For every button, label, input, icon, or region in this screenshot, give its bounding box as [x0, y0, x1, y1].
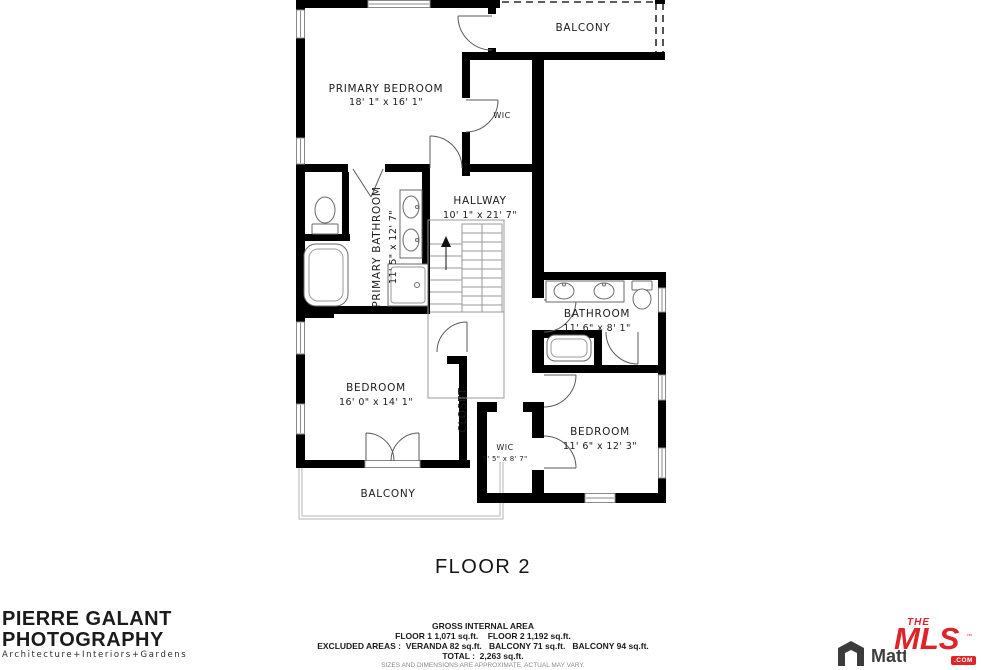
room-label-primary-bathroom: PRIMARY BATHROOM: [371, 186, 383, 307]
photographer-name-line1: PIERRE GALANT: [2, 609, 172, 630]
door-bathroom-inner: [606, 332, 638, 364]
photographer-name-line2: PHOTOGRAPHY: [2, 630, 164, 651]
room-label-wic-top: WIC: [493, 111, 510, 120]
room-label-bathroom: BATHROOM: [564, 308, 630, 320]
room-dims-wic-bottom: 5' 5" x 8' 7": [482, 455, 527, 463]
room-label-closet: CLOSET: [457, 388, 469, 433]
mls-logo-com: .COM: [951, 656, 976, 665]
room-label-balcony-top: BALCONY: [555, 22, 610, 34]
area-summary-disclaimer: SIZES AND DIMENSIONS ARE APPROXIMATE, AC…: [0, 662, 966, 669]
floor-plan-page: BALCONY PRIMARY BEDROOM 18' 1" x 16' 1" …: [0, 0, 983, 670]
sink-vanity-bathroom: [546, 281, 624, 302]
mls-logo-mls: MLS: [894, 623, 959, 654]
sink-vanity-primary: [400, 190, 422, 258]
room-label-primary-bedroom: PRIMARY BEDROOM: [329, 83, 444, 95]
room-dims-primary-bedroom: 18' 1" x 16' 1": [349, 97, 423, 108]
floor-title: FLOOR 2: [0, 556, 966, 579]
room-dims-primary-bathroom: 11' 5" x 12' 7": [388, 210, 399, 284]
door-bedroom-left-entry: [437, 322, 467, 352]
bathtub-icon-primary: [304, 244, 348, 306]
room-label-hallway: HALLWAY: [453, 195, 506, 207]
door-bedroom-right-1: [544, 375, 576, 407]
toilet-icon-primary: [312, 197, 338, 234]
photographer-tagline: Architecture+Interiors+Gardens: [2, 650, 187, 660]
stairs-up-arrow: [441, 236, 451, 247]
room-label-balcony-bottom: BALCONY: [360, 488, 415, 500]
toilet-icon-bathroom: [632, 281, 652, 309]
room-label-bedroom-right: BEDROOM: [570, 426, 630, 438]
mls-logo: THE MLS ™ .COM: [893, 611, 983, 670]
room-label-wic-bottom: WIC: [496, 443, 513, 452]
matterport-cube-icon: [835, 639, 867, 669]
mls-logo-tm: ™: [966, 633, 973, 641]
door-french-balcony: [366, 433, 419, 461]
room-dims-bedroom-left: 16' 0" x 14' 1": [339, 397, 413, 408]
door-primary-bedroom-hall: [430, 136, 462, 168]
bathtub-icon-bathroom: [547, 335, 591, 361]
room-dims-hallway: 10' 1" x 21' 7": [443, 210, 517, 221]
room-label-bedroom-left: BEDROOM: [346, 382, 406, 394]
door-balcony-top: [458, 16, 492, 50]
room-dims-bathroom: 11' 6" x 8' 1": [563, 323, 631, 334]
room-dims-bedroom-right: 11' 6" x 12' 3": [563, 441, 637, 452]
